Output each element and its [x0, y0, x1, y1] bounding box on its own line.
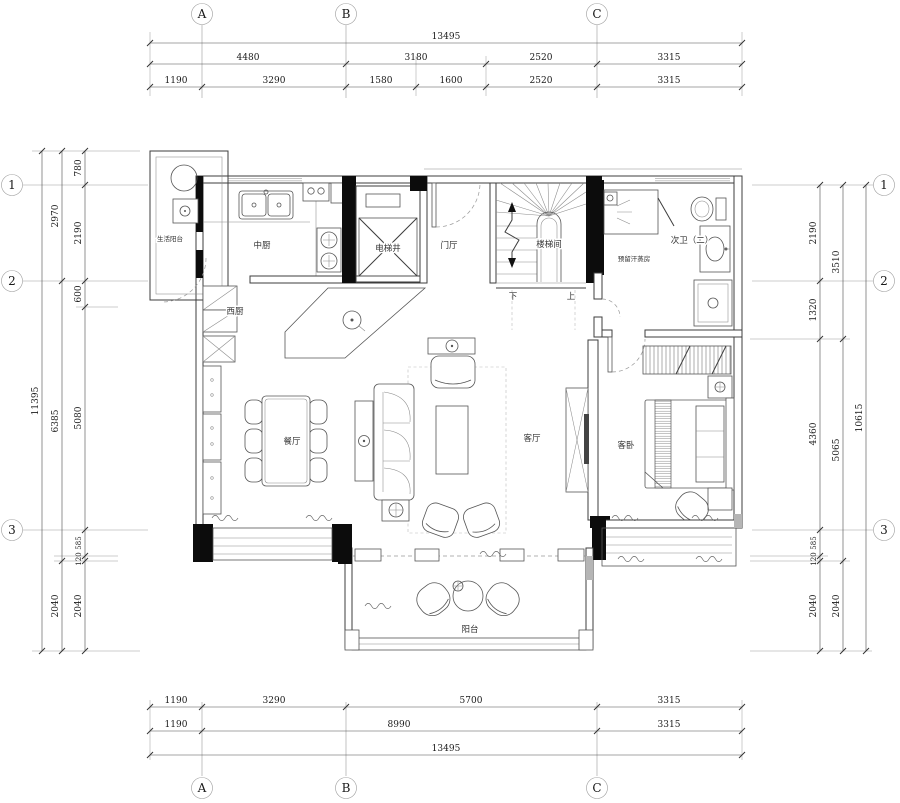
dim: 2520 — [530, 76, 553, 86]
dim: 1580 — [370, 76, 393, 86]
grid-row-2-left: 2 — [8, 274, 16, 288]
room-guest-bed: 客卧 — [592, 330, 742, 566]
dim-top-total: 13495 — [432, 32, 461, 42]
dim: 3510 — [832, 250, 842, 273]
label-kitchen-w: 西厨 — [226, 307, 244, 317]
dim: 1190 — [165, 720, 188, 730]
dim: 5080 — [74, 406, 84, 429]
room-balcony: 阳台 — [338, 546, 593, 650]
dim: 3315 — [658, 720, 681, 730]
dim-right-total: 10615 — [855, 403, 865, 432]
dim: 2970 — [51, 204, 61, 227]
dim: 600 — [74, 285, 84, 302]
dim: 780 — [74, 159, 84, 176]
label-service-balcony: 生活阳台 — [157, 234, 183, 243]
floor-plan-drawing: A B C A B C 1 2 3 1 2 3 13495 4480 3180 … — [0, 0, 900, 803]
dim: 3315 — [658, 696, 681, 706]
label-stairs-down: 下 — [509, 292, 518, 302]
label-elevator: 电梯井 — [375, 243, 401, 254]
label-stairs-up: 上 — [567, 292, 576, 302]
dim: 1320 — [809, 298, 819, 321]
floor-plan: 生活阳台 中厨 电梯井 门 — [150, 151, 742, 650]
dim: 4480 — [237, 53, 260, 63]
label-guest-bed: 客卧 — [617, 440, 635, 451]
label-steam-room: 预留汗蒸房 — [618, 254, 651, 263]
dim-bottom-total: 13495 — [432, 744, 461, 754]
dim: 4360 — [809, 422, 819, 445]
grid-col-a-bottom: A — [197, 781, 207, 795]
dim: 2520 — [530, 53, 553, 63]
dim: 3290 — [263, 76, 286, 86]
grid-row-1-left: 1 — [8, 178, 16, 192]
room-bath2: 次卫（二） 预留汗蒸房 — [593, 180, 732, 337]
grid-col-b-top: B — [342, 7, 351, 21]
room-living: 客厅 — [355, 338, 610, 540]
dim: 3290 — [263, 696, 286, 706]
elevator-shaft: 电梯井 — [342, 176, 427, 283]
label-dining: 餐厅 — [283, 437, 301, 447]
label-living: 客厅 — [523, 433, 541, 444]
dim: 1190 — [165, 696, 188, 706]
label-foyer: 门厅 — [440, 240, 458, 251]
dim: 2040 — [809, 594, 819, 617]
dim: 2040 — [51, 594, 61, 617]
grid-system: A B C A B C 1 2 3 1 2 3 — [2, 4, 895, 799]
dimensions-bottom: 1190 3290 5700 3315 1190 8990 3315 13495 — [150, 696, 742, 760]
dimensions-top: 13495 4480 3180 2520 3315 1190 3290 1580… — [150, 32, 742, 96]
room-foyer: 门厅 — [432, 183, 480, 251]
dim: 585 — [810, 536, 818, 549]
dim: 5700 — [460, 696, 483, 706]
dim: 6385 — [51, 409, 61, 432]
dim: 3315 — [658, 76, 681, 86]
grid-col-c-bottom: C — [592, 781, 601, 795]
grid-col-b-bottom: B — [342, 781, 351, 795]
dim: 2190 — [809, 221, 819, 244]
label-stairwell: 楼梯间 — [536, 239, 562, 250]
floor-plan-sheet: A B C A B C 1 2 3 1 2 3 13495 4480 3180 … — [0, 0, 900, 803]
dim: 8990 — [388, 720, 411, 730]
room-kitchen-cn: 中厨 — [203, 183, 427, 283]
stairwell: 楼梯间 下 上 — [490, 176, 602, 330]
dim: 3315 — [658, 53, 681, 63]
grid-col-a-top: A — [197, 7, 207, 21]
dimensions-left: 780 2190 600 5080 585 120 2040 2970 6385… — [31, 151, 140, 651]
room-dining: 餐厅 — [245, 396, 327, 486]
grid-row-2-right: 2 — [880, 274, 888, 288]
label-bath2: 次卫（二） — [671, 235, 714, 246]
dim: 5065 — [832, 438, 842, 461]
dimensions-right: 2190 1320 4360 585 120 2040 3510 5065 20… — [750, 185, 872, 651]
grid-row-1-right: 1 — [880, 178, 888, 192]
dim: 2190 — [74, 221, 84, 244]
dim: 2040 — [74, 594, 84, 617]
dim: 1190 — [165, 76, 188, 86]
label-kitchen-cn: 中厨 — [253, 240, 271, 251]
dim: 585 — [75, 536, 83, 549]
grid-row-3-right: 3 — [880, 523, 888, 537]
dim: 120 — [810, 552, 818, 565]
grid-col-c-top: C — [592, 7, 601, 21]
dim: 120 — [75, 552, 83, 565]
label-balcony: 阳台 — [461, 624, 478, 635]
dim-left-total: 11395 — [31, 386, 41, 415]
grid-row-3-left: 3 — [8, 523, 16, 537]
dim: 2040 — [832, 594, 842, 617]
dim: 1600 — [440, 76, 463, 86]
dim: 3180 — [405, 53, 428, 63]
room-service-balcony: 生活阳台 — [150, 151, 228, 302]
